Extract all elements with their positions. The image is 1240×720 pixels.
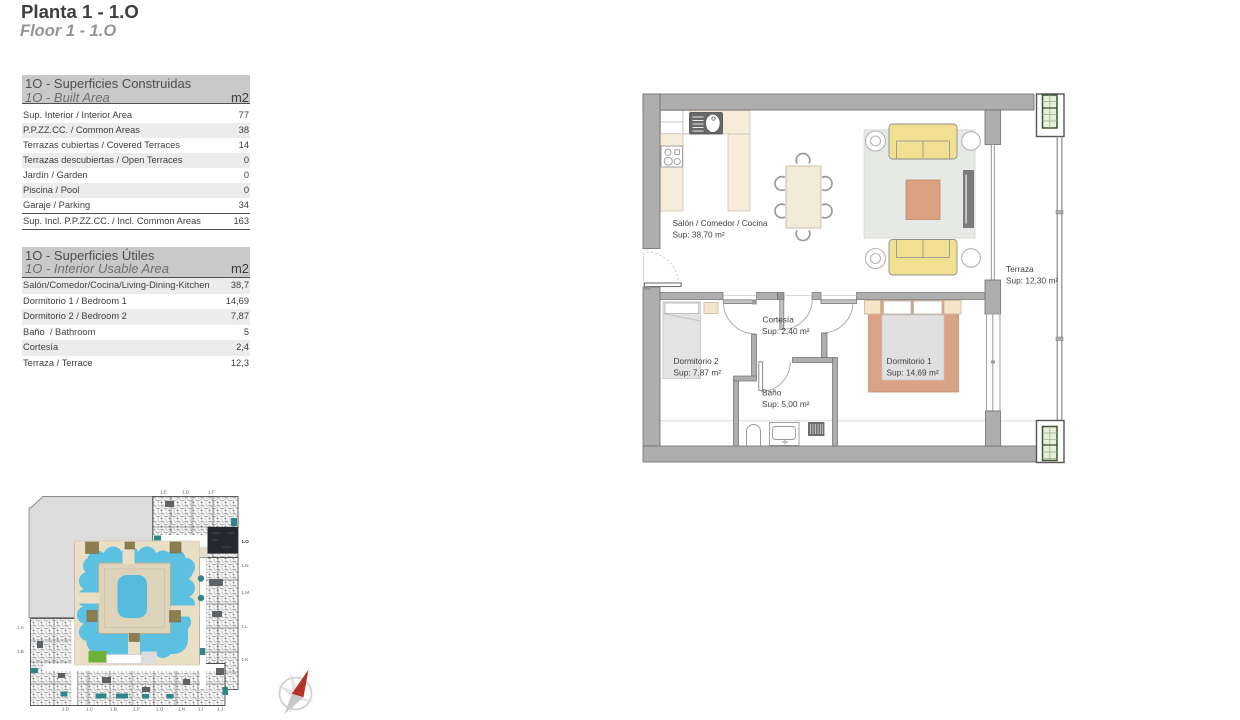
svg-text:Baño: Baño: [762, 388, 782, 398]
svg-text:1.E: 1.E: [160, 490, 167, 495]
svg-text:Dormitorio 1: Dormitorio 1: [887, 356, 933, 366]
svg-text:1.J: 1.J: [217, 707, 223, 712]
svg-text:1.D: 1.D: [62, 707, 70, 712]
svg-text:1.B: 1.B: [17, 649, 24, 654]
svg-text:Terraza: Terraza: [1006, 264, 1034, 274]
svg-text:1.O: 1.O: [156, 707, 164, 712]
svg-text:Dormitorio 2: Dormitorio 2: [674, 356, 720, 366]
svg-text:Sup: 12,30 m²: Sup: 12,30 m²: [1006, 276, 1058, 286]
svg-text:Sup: 5,00 m²: Sup: 5,00 m²: [762, 399, 810, 409]
svg-text:Sup: 14,69 m²: Sup: 14,69 m²: [887, 368, 939, 378]
svg-text:1.N: 1.N: [178, 707, 185, 712]
svg-text:1.L: 1.L: [242, 624, 249, 629]
svg-text:Sup: 38,70 m²: Sup: 38,70 m²: [673, 230, 725, 240]
svg-text:Sup: 7,87 m²: Sup: 7,87 m²: [674, 368, 722, 378]
svg-text:1.P: 1.P: [133, 707, 140, 712]
svg-text:1.M: 1.M: [242, 590, 250, 595]
svg-text:1.D: 1.D: [182, 490, 190, 495]
svg-text:1.I: 1.I: [198, 707, 203, 712]
svg-text:Cortesía: Cortesía: [763, 315, 795, 325]
svg-text:1.O: 1.O: [242, 539, 250, 544]
svg-text:Salón / Comedor / Cocina: Salón / Comedor / Cocina: [673, 218, 768, 228]
svg-text:Sup: 2,40 m²: Sup: 2,40 m²: [762, 326, 810, 336]
svg-text:1.K: 1.K: [242, 657, 249, 662]
svg-text:1.F: 1.F: [208, 490, 215, 495]
svg-text:1.A: 1.A: [17, 625, 24, 630]
svg-text:1.B: 1.B: [110, 707, 117, 712]
svg-text:1.C: 1.C: [86, 707, 94, 712]
svg-text:1.N: 1.N: [242, 563, 249, 568]
